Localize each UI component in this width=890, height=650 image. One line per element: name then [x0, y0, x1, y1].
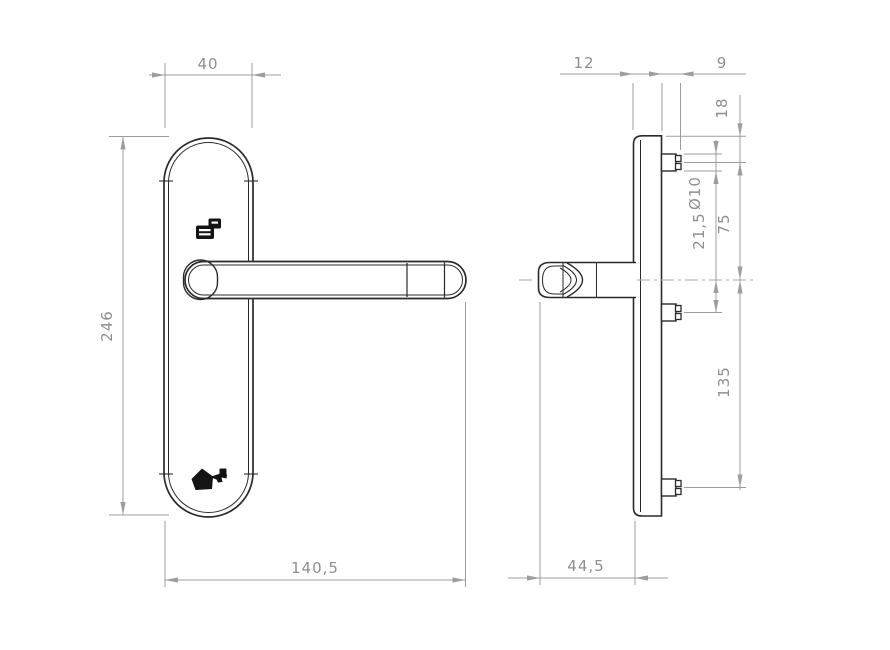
- arrow: [649, 71, 662, 76]
- arrow: [737, 475, 742, 488]
- arrow: [713, 171, 718, 184]
- arrow: [681, 71, 694, 76]
- arrow: [120, 137, 125, 150]
- arrow: [635, 575, 648, 580]
- lever-side-outline: [539, 263, 637, 298]
- dim-label-top-peg-to-center: 75: [715, 213, 733, 234]
- lever-side: [539, 263, 637, 298]
- arrow: [165, 577, 178, 582]
- arrow: [453, 577, 466, 582]
- fixing-peg-top: [662, 154, 682, 171]
- lever-front: [184, 260, 467, 300]
- dim-label-center-to-bottom-peg: 135: [715, 366, 733, 398]
- arrow: [713, 281, 718, 294]
- dim-label-center-to-mid-peg: 21,5: [690, 212, 708, 249]
- dim-label-peg-length: 9: [717, 54, 728, 72]
- dim-label-plate-top-to-peg: 18: [713, 97, 731, 118]
- drawing-svg: 40 246 140,5 12: [0, 0, 890, 650]
- arrow: [620, 71, 633, 76]
- dimension-vertical-chain-inner: Ø10 21,5: [686, 140, 719, 313]
- front-view: [159, 138, 466, 517]
- arrow: [737, 163, 742, 176]
- lever-outline: [185, 262, 466, 299]
- fixing-peg-middle: [662, 304, 682, 321]
- fixing-pegs: [662, 154, 682, 496]
- arrow: [252, 72, 265, 77]
- arrow: [713, 141, 718, 154]
- arrow: [713, 300, 718, 313]
- dimension-plate-height: 246: [98, 137, 169, 516]
- fixing-peg-bottom: [662, 479, 682, 496]
- dim-label-plate-width: 40: [197, 55, 218, 73]
- dim-label-plate-height: 246: [98, 310, 116, 342]
- arrow: [527, 575, 540, 580]
- dim-label-overall-width: 140,5: [291, 559, 339, 577]
- arrow: [737, 123, 742, 136]
- side-view: [519, 136, 757, 516]
- dim-label-overall-depth: 44,5: [567, 557, 604, 575]
- arrow: [737, 267, 742, 280]
- technical-drawing-page: 40 246 140,5 12: [0, 0, 890, 650]
- arrow: [120, 502, 125, 515]
- arrow: [152, 72, 165, 77]
- backplate-outline: [164, 138, 253, 517]
- arrow: [737, 281, 742, 294]
- dimension-plate-width: 40: [149, 55, 281, 128]
- dim-label-plate-thickness: 12: [573, 54, 594, 72]
- dim-label-peg-diameter: Ø10: [686, 176, 704, 210]
- backplate-side-outline: [634, 136, 662, 516]
